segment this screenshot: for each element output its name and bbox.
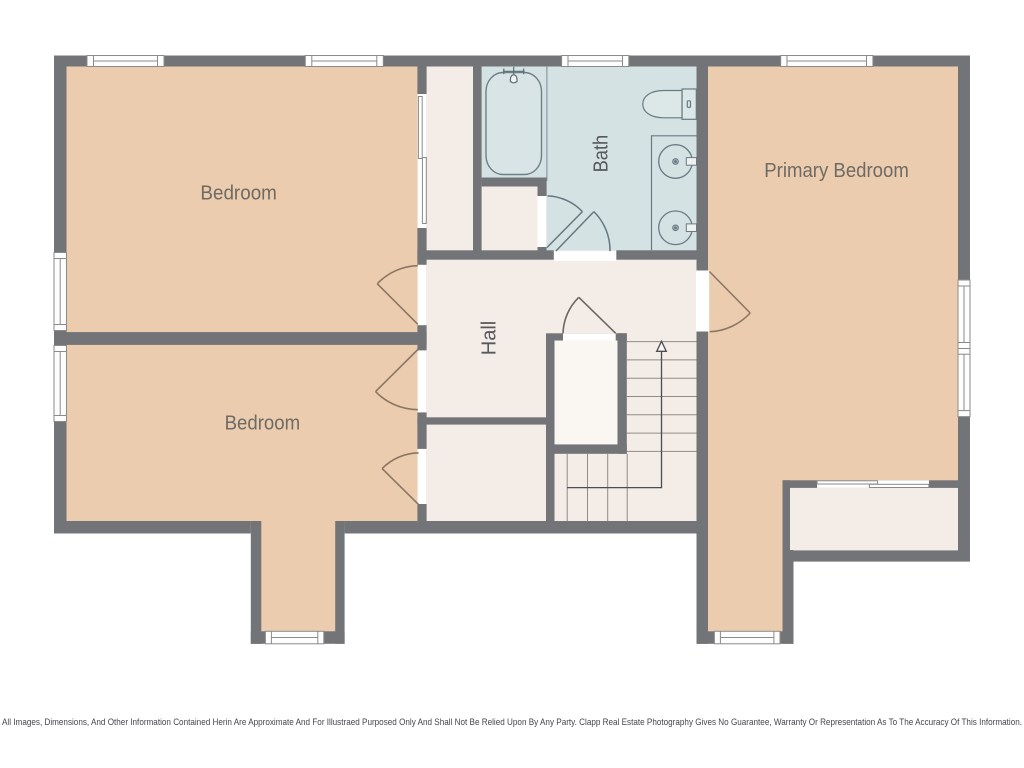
svg-text:Hall: Hall: [478, 321, 500, 356]
svg-text:All Images, Dimensions, And Ot: All Images, Dimensions, And Other Inform…: [2, 717, 1022, 727]
svg-text:Bedroom: Bedroom: [225, 412, 301, 434]
svg-text:Bedroom: Bedroom: [200, 183, 277, 205]
svg-text:Primary Bedroom: Primary Bedroom: [764, 160, 909, 182]
svg-text:Bath: Bath: [590, 135, 612, 173]
